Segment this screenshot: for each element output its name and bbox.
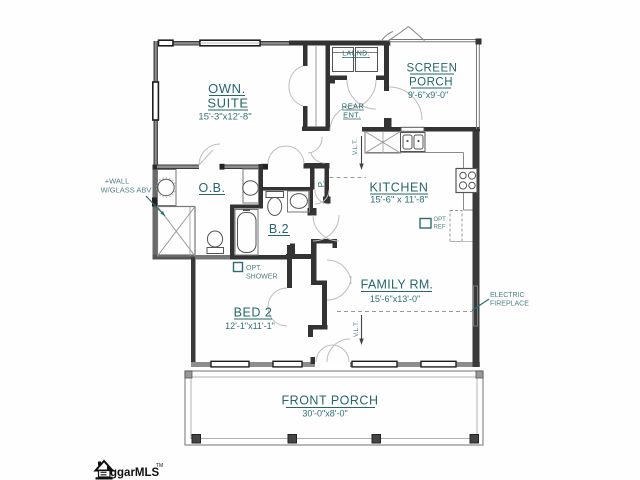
svg-text:15'-3"x12'-8": 15'-3"x12'-8" bbox=[198, 112, 251, 123]
svg-text:REF: REF bbox=[434, 225, 446, 231]
svg-text:LAUND.: LAUND. bbox=[342, 51, 369, 58]
svg-text:OWN.: OWN. bbox=[208, 81, 246, 96]
svg-text:FAMILY RM.: FAMILY RM. bbox=[361, 278, 434, 292]
svg-text:P.: P. bbox=[317, 181, 326, 188]
svg-text:30'-0"x8'-0": 30'-0"x8'-0" bbox=[302, 409, 347, 419]
svg-text:OPT: OPT bbox=[434, 217, 447, 223]
svg-text:SHOWER: SHOWER bbox=[246, 274, 278, 281]
svg-text:SCREEN: SCREEN bbox=[407, 63, 458, 75]
svg-text:15'-6" x 11'-8": 15'-6" x 11'-8" bbox=[370, 195, 428, 206]
svg-text:FIREPLACE: FIREPLACE bbox=[490, 301, 529, 308]
svg-text:FRONT PORCH: FRONT PORCH bbox=[282, 394, 379, 408]
svg-text:9'-6"x9'-0": 9'-6"x9'-0" bbox=[408, 90, 448, 100]
svg-text:REAR: REAR bbox=[342, 102, 365, 111]
svg-text:PORCH: PORCH bbox=[409, 77, 453, 89]
svg-text:W/GLASS ABV: W/GLASS ABV bbox=[101, 186, 152, 195]
svg-text:V.L.T.: V.L.T. bbox=[352, 139, 359, 155]
svg-text:ELECTRIC: ELECTRIC bbox=[490, 292, 525, 299]
svg-text:SUITE: SUITE bbox=[207, 96, 248, 111]
svg-text:15'-6"x13'-0": 15'-6"x13'-0" bbox=[370, 294, 420, 304]
svg-text:BED 2: BED 2 bbox=[234, 306, 273, 320]
svg-text:ggarMLS: ggarMLS bbox=[110, 467, 160, 479]
svg-text:V.L.T.: V.L.T. bbox=[353, 321, 360, 337]
svg-text:ENT.: ENT. bbox=[343, 111, 361, 120]
svg-text:KITCHEN: KITCHEN bbox=[369, 181, 428, 195]
svg-text:12'-1"x11'-1": 12'-1"x11'-1" bbox=[225, 321, 275, 331]
svg-text:O.B.: O.B. bbox=[198, 181, 225, 195]
svg-text:B.2: B.2 bbox=[269, 222, 289, 236]
svg-text:OPT.: OPT. bbox=[246, 265, 262, 272]
svg-text:TM: TM bbox=[156, 463, 163, 469]
svg-text:+WALL: +WALL bbox=[105, 177, 130, 186]
